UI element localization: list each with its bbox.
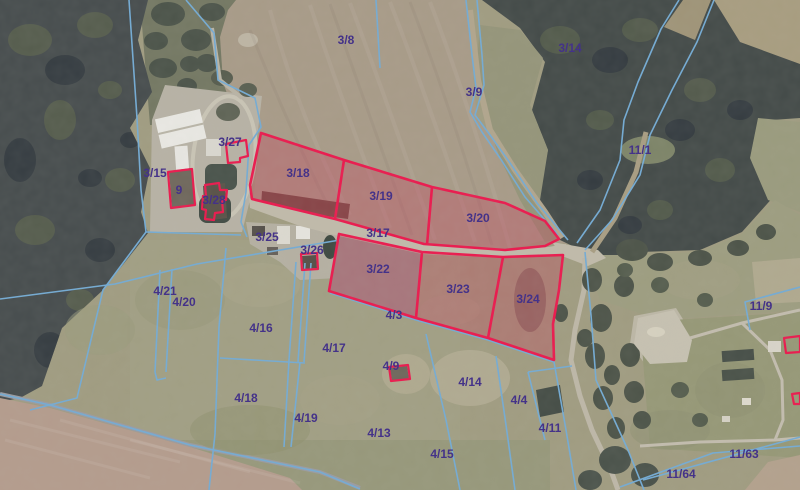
svg-text:3/8: 3/8 bbox=[338, 33, 355, 47]
svg-text:11/63: 11/63 bbox=[729, 447, 759, 461]
svg-text:3/20: 3/20 bbox=[466, 211, 490, 225]
svg-text:4/3: 4/3 bbox=[386, 308, 403, 322]
svg-text:3/19: 3/19 bbox=[369, 189, 393, 203]
svg-text:3/14: 3/14 bbox=[558, 41, 582, 55]
svg-text:3/24: 3/24 bbox=[516, 292, 540, 306]
svg-text:4/18: 4/18 bbox=[234, 391, 258, 405]
svg-text:4/20: 4/20 bbox=[172, 295, 196, 309]
svg-text:4/17: 4/17 bbox=[322, 341, 346, 355]
svg-text:3/22: 3/22 bbox=[366, 262, 390, 276]
svg-text:11/9: 11/9 bbox=[750, 299, 773, 313]
svg-text:3/26: 3/26 bbox=[300, 243, 324, 257]
svg-text:11/1: 11/1 bbox=[629, 143, 652, 157]
svg-text:4/9: 4/9 bbox=[383, 359, 400, 373]
svg-text:4/11: 4/11 bbox=[539, 421, 562, 435]
svg-text:4/19: 4/19 bbox=[294, 411, 318, 425]
svg-text:3/27: 3/27 bbox=[218, 135, 242, 149]
svg-text:4/14: 4/14 bbox=[458, 375, 482, 389]
svg-text:4/15: 4/15 bbox=[430, 447, 454, 461]
svg-text:4/4: 4/4 bbox=[511, 393, 528, 407]
svg-text:4/13: 4/13 bbox=[367, 426, 391, 440]
svg-text:9: 9 bbox=[176, 183, 183, 197]
svg-text:3/15: 3/15 bbox=[143, 166, 167, 180]
svg-text:3/17: 3/17 bbox=[366, 226, 390, 240]
svg-text:3/9: 3/9 bbox=[466, 85, 483, 99]
svg-text:11/64: 11/64 bbox=[666, 467, 696, 481]
svg-text:3/23: 3/23 bbox=[446, 282, 470, 296]
svg-text:4/16: 4/16 bbox=[249, 321, 273, 335]
svg-text:3/25: 3/25 bbox=[255, 230, 279, 244]
svg-text:3/18: 3/18 bbox=[286, 166, 310, 180]
svg-text:3/28: 3/28 bbox=[202, 193, 226, 207]
